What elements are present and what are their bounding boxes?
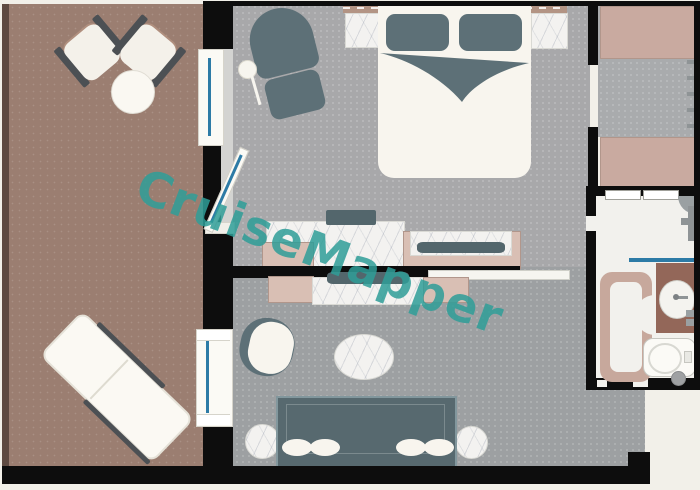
patio-table <box>111 70 155 114</box>
bed-pillow-right <box>459 14 522 51</box>
floor-drain <box>671 371 686 386</box>
shower-shelf <box>605 190 641 200</box>
toiletry-item <box>686 319 694 326</box>
bottom-wall <box>2 466 650 484</box>
sofa <box>276 396 457 471</box>
window-glass <box>208 58 211 136</box>
door-frame-cap <box>197 414 230 425</box>
bedroom-dresser-tv <box>417 242 505 253</box>
door-glass <box>206 341 209 413</box>
bottom-right-wall-step <box>628 452 650 484</box>
bedroom-tv <box>326 210 376 225</box>
side-table-left <box>245 424 280 459</box>
coffee-table <box>334 334 394 380</box>
sofa-cushion <box>424 439 454 456</box>
bathroom-wall-mark <box>597 380 607 387</box>
bedroom-entry-wall-top <box>588 4 598 65</box>
bedroom-window <box>198 49 224 146</box>
shower-glass-partition <box>629 258 694 262</box>
shower-enclosure-inner <box>610 282 642 372</box>
sun-lounger-body <box>39 311 194 464</box>
toilet <box>643 338 696 377</box>
sun-lounger-rail <box>83 399 151 465</box>
side-table-right <box>455 426 488 459</box>
toilet-seat <box>648 343 682 374</box>
shower-shelf <box>643 190 679 200</box>
living-console-cabinet-left <box>268 276 314 303</box>
sink-faucet-dot <box>673 294 679 300</box>
nightstand-right <box>531 13 568 49</box>
top-wall <box>203 1 700 6</box>
living-balcony-door <box>196 329 233 427</box>
balcony-edge-wall <box>2 4 9 468</box>
bed-pillow-left <box>386 14 449 51</box>
floor-lamp <box>238 60 257 79</box>
door-frame-cap <box>197 330 230 341</box>
bathroom-door-gap <box>586 216 596 231</box>
right-wall <box>694 1 700 390</box>
toiletry-item <box>686 310 694 317</box>
bed-blanket-fold <box>378 50 531 106</box>
cabin-floorplan: CruiseMapper <box>0 0 700 490</box>
wardrobe-bottom <box>600 137 696 190</box>
sofa-cushion <box>396 439 426 456</box>
toilet-flush-button <box>684 351 692 363</box>
nightstand-left <box>345 13 380 48</box>
wardrobe-top <box>600 6 696 59</box>
sun-lounger <box>40 312 194 462</box>
sofa-cushion <box>282 439 312 456</box>
bedroom-entry-wall-bottom <box>588 127 598 190</box>
sun-lounger-seam <box>90 359 129 399</box>
sofa-cushion <box>310 439 340 456</box>
